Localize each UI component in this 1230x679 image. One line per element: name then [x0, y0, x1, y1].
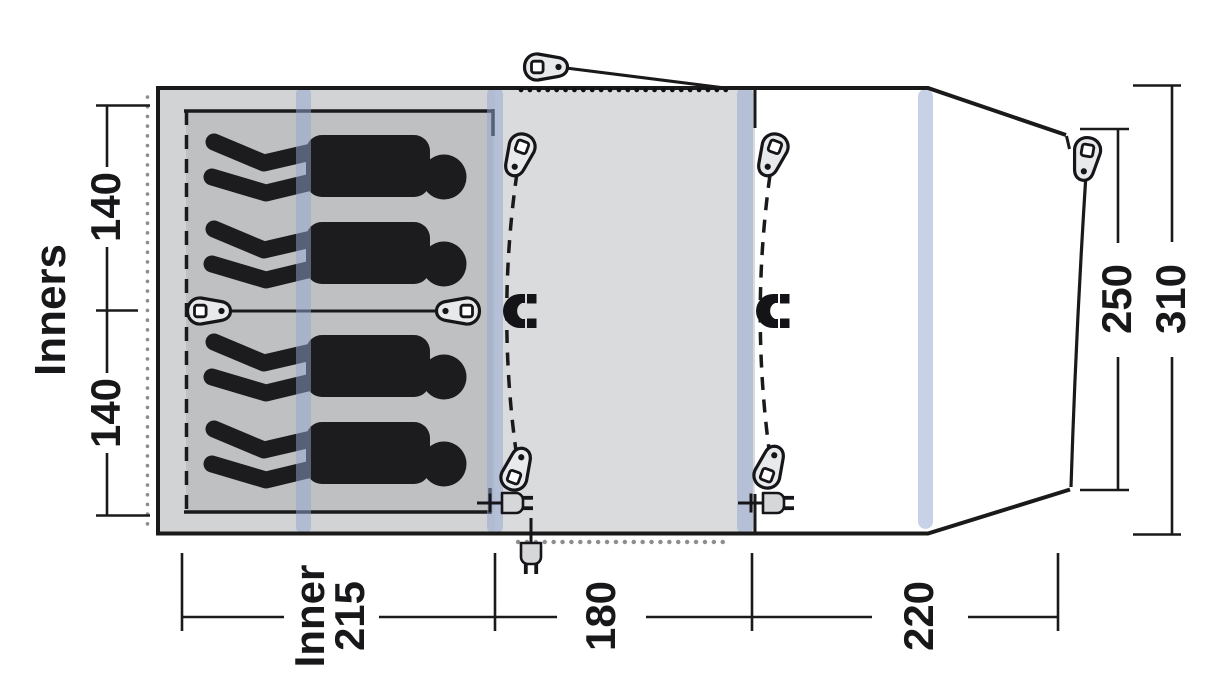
air-pole-stripe-1 — [296, 87, 311, 535]
dim-inner-length-word: Inner — [290, 565, 330, 668]
divider-right-zip-pull-icon — [437, 298, 480, 324]
floorplan-drawing — [0, 0, 1230, 679]
inners-side-label: Inners — [29, 244, 73, 376]
dim-inner-length-value: 215 — [330, 565, 370, 668]
dim-living-length: 180 — [580, 581, 622, 651]
dim-inner-length: Inner 215 — [290, 565, 370, 668]
dim-front-total-width: 310 — [1150, 264, 1192, 334]
air-pole-stripe-2 — [487, 87, 503, 535]
front-door-zip-line — [1071, 174, 1086, 487]
divider-left-zip-pull-icon — [188, 298, 231, 324]
guyline — [562, 68, 729, 89]
front-door-zip-pull-icon — [1069, 136, 1102, 183]
tent-floorplan-diagram: Inners 140 140 Inner 215 180 220 250 310 — [0, 0, 1230, 679]
dim-bedroom-width-top: 140 — [85, 172, 127, 242]
air-pole-stripe-4 — [918, 89, 933, 529]
dim-bedroom-width-bottom: 140 — [85, 378, 127, 448]
front-section-floor — [755, 88, 1072, 534]
dim-front-length: 220 — [898, 581, 940, 651]
air-pole-stripe-3 — [737, 87, 753, 535]
dim-front-inner-width: 250 — [1096, 264, 1138, 334]
guyline-peg-icon — [525, 54, 568, 80]
